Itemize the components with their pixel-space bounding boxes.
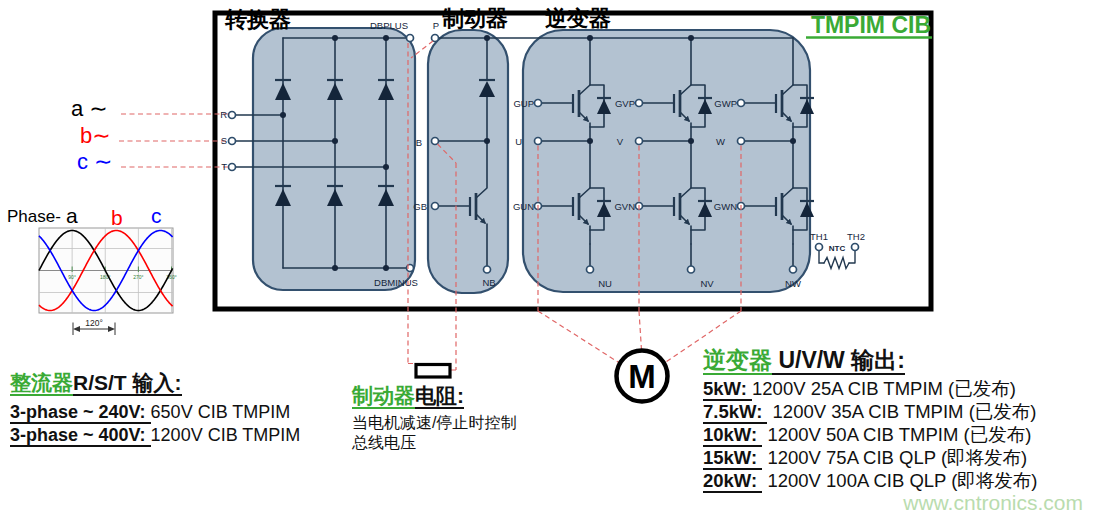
infographic-canvas: M 转换器 制动器 逆变器 TMPIM CIB DBPLUS P DBMINUS…: [0, 0, 1103, 520]
label-gup: GUP: [513, 98, 534, 109]
label-nw: NW: [785, 278, 801, 289]
rectifier-heading-green: 整流器: [10, 371, 73, 396]
label-ntc: NTC: [829, 244, 846, 253]
rectifier-note-heading: 整流器R/S/T 输入:: [10, 369, 320, 396]
spec-prefix: 3-phase ~ 400V:: [10, 425, 151, 447]
brake-note: 制动器电阻: 当电机减速/停止时控制总线电压: [352, 383, 524, 453]
terminal-nb: [484, 266, 491, 273]
brake-heading-green: 制动器: [352, 384, 415, 409]
spec-prefix: 5kW:: [703, 378, 752, 401]
label-gb: GB: [413, 201, 427, 212]
terminal-t: [229, 164, 236, 171]
rectifier-spec-line: 3-phase ~ 400V: 1200V CIB TMPIM: [10, 424, 320, 447]
label-gwn: GWN: [714, 201, 737, 212]
label-r: R: [220, 109, 227, 120]
label-th1: TH1: [810, 231, 828, 242]
inverter-spec-line: 15kW: 1200V 75A CIB QLP (即将发布): [703, 446, 1101, 469]
label-u: U: [515, 136, 522, 147]
terminal-v: [636, 138, 643, 145]
label-gun: GUN: [513, 201, 534, 212]
spec-prefix: 15kW:: [703, 447, 762, 470]
dimension-120deg: 120°: [73, 318, 115, 335]
terminal-b: [432, 138, 439, 145]
badge-label: TMPIM CIB: [811, 12, 931, 38]
label-dbplus: DBPLUS: [370, 20, 408, 31]
legend-a: a: [66, 204, 78, 227]
terminal-nw: [790, 266, 797, 273]
terminal-th2: [852, 244, 859, 251]
terminal-gb: [432, 203, 439, 210]
inverter-spec-line: 5kW: 1200V 25A CIB TMPIM (已发布): [703, 377, 1101, 400]
terminal-r: [229, 112, 236, 119]
inverter-heading-black: U/V/W 输出:: [772, 347, 905, 375]
terminal-dbplus: [407, 35, 414, 42]
chart-tick-label: 270°: [133, 274, 143, 280]
spec-value: 1200V 35A CIB TMPIM (已发布): [767, 401, 1036, 422]
label-gwp: GWP: [714, 98, 737, 109]
terminal-nu: [587, 266, 594, 273]
phase-a-label: a ∼: [71, 96, 108, 121]
rectifier-spec-line: 3-phase ~ 240V: 650V CIB TMPIM: [10, 401, 320, 424]
title-brake: 制动器: [441, 6, 508, 31]
label-s: S: [221, 135, 227, 146]
terminal-th1: [816, 244, 823, 251]
spec-value: 1200V CIB TMPIM: [151, 425, 301, 445]
label-v: V: [617, 136, 624, 147]
spec-prefix: 3-phase ~ 240V:: [10, 402, 151, 424]
brake-module-box: [428, 30, 508, 293]
label-dbminus: DBMINUS: [374, 277, 418, 288]
dimension-label: 120°: [85, 318, 103, 328]
watermark: www.cntronics.com: [903, 491, 1083, 515]
motor-symbol: M: [617, 351, 668, 402]
label-w: W: [716, 136, 725, 147]
spec-value: 1200V 75A CIB QLP (即将发布): [762, 447, 1027, 468]
rectifier-heading-black: R/S/T 输入:: [73, 371, 182, 396]
spec-value: 650V CIB TMPIM: [151, 402, 291, 422]
inverter-heading-green: 逆变器: [703, 347, 772, 375]
spec-prefix: 20kW:: [703, 470, 762, 493]
inverter-spec-line: 20kW: 1200V 100A CIB QLP (即将发布): [703, 469, 1101, 492]
title-converter: 转换器: [224, 7, 291, 32]
phase-c-label: c ∼: [77, 149, 113, 174]
inverter-note-heading: 逆变器 U/V/W 输出:: [703, 347, 1101, 374]
phase-input-labels: a ∼ b∼ c ∼: [71, 96, 113, 174]
label-p: P: [433, 20, 439, 31]
converter-module-box: [253, 28, 415, 290]
spec-prefix: 7.5kW:: [703, 401, 767, 424]
inverter-note: 逆变器 U/V/W 输出: 5kW: 1200V 25A CIB TMPIM (…: [703, 347, 1101, 492]
brake-note-body: 当电机减速/停止时控制总线电压: [352, 413, 524, 453]
brake-heading-black: 电阻:: [415, 384, 464, 409]
spec-value: 1200V 50A CIB TMPIM (已发布): [762, 424, 1031, 445]
label-th2: TH2: [847, 231, 865, 242]
spec-value: 1200V 100A CIB QLP (即将发布): [762, 470, 1037, 491]
spec-prefix: 10kW:: [703, 424, 762, 447]
legend-b: b: [111, 206, 123, 229]
chart-tick-label: 90°: [68, 274, 76, 280]
label-nu: NU: [598, 278, 612, 289]
terminal-p: [432, 35, 439, 42]
label-gvp: GVP: [615, 98, 635, 109]
rectifier-note: 整流器R/S/T 输入: 3-phase ~ 240V: 650V CIB TM…: [10, 369, 320, 447]
terminal-u: [535, 138, 542, 145]
terminal-w: [738, 138, 745, 145]
label-nb: NB: [482, 277, 495, 288]
inverter-spec-line: 10kW: 1200V 50A CIB TMPIM (已发布): [703, 423, 1101, 446]
brake-note-heading: 制动器电阻:: [352, 383, 524, 408]
label-b: B: [416, 137, 422, 148]
terminal-nv: [688, 266, 695, 273]
phase-chart: Phase- a b c 90°180°270°360° 120°: [7, 204, 177, 335]
brake-resistor-symbol: [416, 365, 450, 378]
inverter-module-box: [523, 30, 810, 292]
phase-b-label: b∼: [80, 123, 111, 148]
tmpim-cib-badge: TMPIM CIB: [806, 12, 932, 38]
inverter-spec-line: 7.5kW: 1200V 35A CIB TMPIM (已发布): [703, 400, 1101, 423]
label-t: T: [221, 161, 227, 172]
phase-chart-title: Phase-: [7, 207, 61, 226]
terminal-s: [229, 138, 236, 145]
motor-label: M: [628, 358, 656, 395]
label-nv: NV: [700, 278, 714, 289]
title-inverter: 逆变器: [545, 6, 611, 31]
spec-value: 1200V 25A CIB TMPIM (已发布): [752, 378, 1016, 399]
label-gvn: GVN: [614, 201, 635, 212]
legend-c: c: [151, 204, 162, 227]
